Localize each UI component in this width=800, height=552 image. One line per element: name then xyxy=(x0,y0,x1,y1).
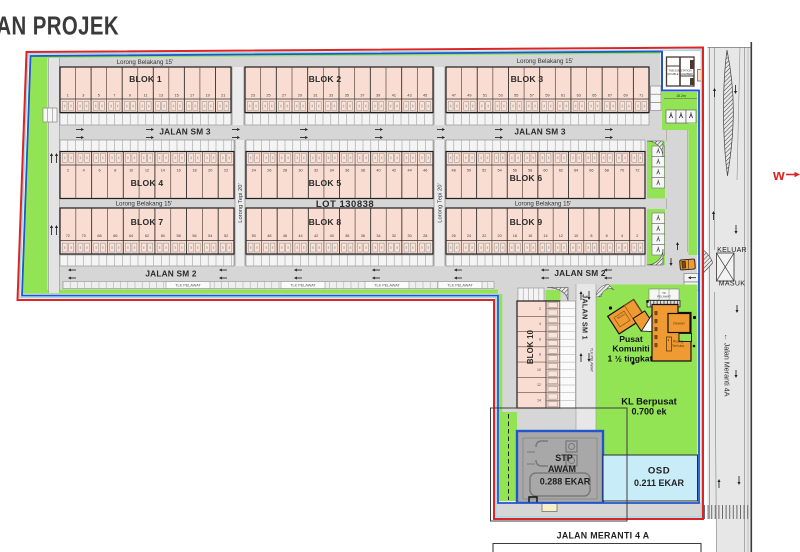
svg-text:Lorong Belakang 15’: Lorong Belakang 15’ xyxy=(116,201,173,208)
svg-text:13: 13 xyxy=(159,94,163,98)
svg-text:BLOK 3: BLOK 3 xyxy=(511,74,544,84)
svg-text:BLOK 2: BLOK 2 xyxy=(309,74,342,84)
svg-text:16: 16 xyxy=(528,234,532,238)
svg-text:JALAN SM 2: JALAN SM 2 xyxy=(554,268,606,278)
svg-text:PELAWAT: PELAWAT xyxy=(657,295,671,299)
svg-text:BLOK 4: BLOK 4 xyxy=(131,178,164,188)
svg-text:8: 8 xyxy=(590,234,592,238)
svg-text:4: 4 xyxy=(83,169,85,173)
svg-text:AWAM: AWAM xyxy=(548,464,576,474)
svg-text:18: 18 xyxy=(513,234,517,238)
svg-text:Komuniti: Komuniti xyxy=(612,344,649,354)
svg-text:2: 2 xyxy=(539,307,541,311)
svg-text:60: 60 xyxy=(543,169,547,173)
svg-text:52: 52 xyxy=(482,169,486,173)
svg-text:0.288 EKAR: 0.288 EKAR xyxy=(540,477,591,487)
svg-text:66: 66 xyxy=(589,169,593,173)
svg-text:31: 31 xyxy=(313,94,317,98)
svg-text:18: 18 xyxy=(192,169,196,173)
svg-text:← Jalan Meranti 4A: ← Jalan Meranti 4A xyxy=(723,333,732,396)
svg-text:41: 41 xyxy=(392,94,396,98)
svg-text:62: 62 xyxy=(145,234,149,238)
svg-text:6: 6 xyxy=(98,169,100,173)
svg-text:56: 56 xyxy=(192,234,196,238)
svg-text:Pusat: Pusat xyxy=(619,334,643,344)
svg-text:12: 12 xyxy=(145,169,149,173)
svg-text:(DOUBLE CHAMBER): (DOUBLE CHAMBER) xyxy=(667,72,693,76)
svg-text:65: 65 xyxy=(592,94,596,98)
svg-text:4: 4 xyxy=(621,234,623,238)
svg-text:51: 51 xyxy=(483,94,487,98)
svg-text:14: 14 xyxy=(543,234,547,238)
svg-text:43: 43 xyxy=(407,94,411,98)
svg-text:12: 12 xyxy=(537,383,541,387)
svg-text:OSD: OSD xyxy=(648,466,670,477)
svg-text:68: 68 xyxy=(97,234,101,238)
svg-text:58: 58 xyxy=(528,169,532,173)
svg-text:71: 71 xyxy=(639,94,643,98)
svg-text:20: 20 xyxy=(497,234,501,238)
svg-text:25: 25 xyxy=(266,94,270,98)
svg-text:TLK PELAWAT: TLK PELAWAT xyxy=(374,284,400,288)
svg-text:28: 28 xyxy=(283,169,287,173)
svg-text:10: 10 xyxy=(574,234,578,238)
svg-text:22: 22 xyxy=(224,169,228,173)
svg-text:38: 38 xyxy=(345,234,349,238)
svg-text:34: 34 xyxy=(376,234,380,238)
svg-text:61: 61 xyxy=(561,94,565,98)
svg-text:46: 46 xyxy=(423,169,427,173)
svg-text:4: 4 xyxy=(539,322,541,326)
svg-text:27: 27 xyxy=(282,94,286,98)
svg-text:38: 38 xyxy=(361,169,365,173)
svg-text:44: 44 xyxy=(408,169,412,173)
svg-text:TLK PELAWAT: TLK PELAWAT xyxy=(175,284,201,288)
svg-text:26: 26 xyxy=(267,169,271,173)
svg-text:10: 10 xyxy=(129,169,133,173)
svg-text:42: 42 xyxy=(392,169,396,173)
svg-text:BLOK 1: BLOK 1 xyxy=(129,74,162,84)
svg-text:10: 10 xyxy=(537,368,541,372)
svg-text:12: 12 xyxy=(559,234,563,238)
svg-text:●: ● xyxy=(668,338,670,342)
svg-text:49: 49 xyxy=(467,94,471,98)
svg-text:0.211 EKAR: 0.211 EKAR xyxy=(634,478,685,488)
svg-text:64: 64 xyxy=(129,234,133,238)
svg-text:TLK PELAWAT: TLK PELAWAT xyxy=(590,348,594,373)
svg-text:6: 6 xyxy=(606,234,608,238)
svg-text:Lorong Belakang 15’: Lorong Belakang 15’ xyxy=(117,59,174,66)
svg-text:1 ½ tingkat: 1 ½ tingkat xyxy=(608,354,653,364)
svg-text:45: 45 xyxy=(423,94,427,98)
svg-text:26: 26 xyxy=(452,234,456,238)
svg-text:STP: STP xyxy=(555,453,573,463)
svg-text:24: 24 xyxy=(252,169,256,173)
svg-text:58: 58 xyxy=(177,234,181,238)
svg-text:40: 40 xyxy=(376,169,380,173)
svg-text:44: 44 xyxy=(298,234,302,238)
svg-text:35: 35 xyxy=(345,94,349,98)
svg-text:36: 36 xyxy=(345,169,349,173)
svg-text:54: 54 xyxy=(497,169,501,173)
svg-text:63: 63 xyxy=(577,94,581,98)
svg-text:17: 17 xyxy=(190,94,194,98)
svg-text:34: 34 xyxy=(330,169,334,173)
svg-text:MASUK: MASUK xyxy=(719,281,745,288)
svg-text:w: w xyxy=(772,167,785,184)
svg-text:39: 39 xyxy=(376,94,380,98)
svg-text:52: 52 xyxy=(224,234,228,238)
svg-text:62: 62 xyxy=(559,169,563,173)
svg-text:Lorong Tepi 20’: Lorong Tepi 20’ xyxy=(238,183,244,223)
svg-text:59: 59 xyxy=(545,94,549,98)
svg-text:8: 8 xyxy=(114,169,116,173)
svg-text:16: 16 xyxy=(177,169,181,173)
svg-text:72: 72 xyxy=(635,169,639,173)
svg-text:47: 47 xyxy=(452,94,456,98)
svg-text:15: 15 xyxy=(174,94,178,98)
svg-text:5: 5 xyxy=(98,94,100,98)
svg-text:22: 22 xyxy=(482,234,486,238)
svg-text:53: 53 xyxy=(499,94,503,98)
svg-text:23: 23 xyxy=(251,94,255,98)
svg-text:JALAN SM 3: JALAN SM 3 xyxy=(159,127,211,137)
svg-text:72: 72 xyxy=(66,234,70,238)
svg-text:69: 69 xyxy=(623,94,627,98)
svg-text:15.2m: 15.2m xyxy=(676,94,686,98)
svg-text:JALAN SM 1: JALAN SM 1 xyxy=(581,294,590,340)
svg-text:9: 9 xyxy=(129,94,131,98)
svg-text:32: 32 xyxy=(314,169,318,173)
svg-text:70: 70 xyxy=(620,169,624,173)
svg-text:BLOK 5: BLOK 5 xyxy=(309,178,342,188)
svg-text:42: 42 xyxy=(314,234,318,238)
svg-text:66: 66 xyxy=(113,234,117,238)
svg-text:33: 33 xyxy=(329,94,333,98)
svg-text:68: 68 xyxy=(605,169,609,173)
svg-text:JALAN SM 2: JALAN SM 2 xyxy=(145,269,197,279)
svg-text:64: 64 xyxy=(574,169,578,173)
svg-text:30: 30 xyxy=(298,169,302,173)
svg-text:30: 30 xyxy=(408,234,412,238)
svg-text:29: 29 xyxy=(298,94,302,98)
svg-text:56: 56 xyxy=(513,169,517,173)
svg-text:2: 2 xyxy=(636,234,638,238)
svg-text:KL Berpusat: KL Berpusat xyxy=(621,396,677,407)
svg-text:Ruang: Ruang xyxy=(673,340,683,344)
svg-text:AN PROJEK: AN PROJEK xyxy=(0,11,119,40)
svg-text:24: 24 xyxy=(467,234,471,238)
svg-text:Dewan: Dewan xyxy=(673,322,684,326)
svg-text:70: 70 xyxy=(82,234,86,238)
svg-text:37: 37 xyxy=(360,94,364,98)
svg-text:6: 6 xyxy=(539,337,541,341)
svg-text:55: 55 xyxy=(514,94,518,98)
svg-text:14: 14 xyxy=(537,399,541,403)
svg-text:BLOK 6: BLOK 6 xyxy=(510,173,543,183)
svg-text:21: 21 xyxy=(221,94,225,98)
svg-text:48: 48 xyxy=(267,234,271,238)
svg-text:3: 3 xyxy=(82,94,84,98)
svg-text:8: 8 xyxy=(539,353,541,357)
svg-text:60: 60 xyxy=(161,234,165,238)
svg-text:54: 54 xyxy=(208,234,212,238)
svg-text:40: 40 xyxy=(330,234,334,238)
svg-text:2: 2 xyxy=(67,169,69,173)
svg-text:JALAN SM 3: JALAN SM 3 xyxy=(514,127,566,137)
svg-text:20: 20 xyxy=(208,169,212,173)
svg-text:BLOK 9: BLOK 9 xyxy=(510,217,543,227)
svg-text:Lorong Tepi 20’: Lorong Tepi 20’ xyxy=(438,183,444,223)
svg-text:BLOK 8: BLOK 8 xyxy=(309,217,342,227)
svg-text:0.700 ek: 0.700 ek xyxy=(631,407,667,417)
svg-text:46: 46 xyxy=(283,234,287,238)
svg-text:Lorong Belakang 15’: Lorong Belakang 15’ xyxy=(515,201,572,208)
svg-text:50: 50 xyxy=(467,169,471,173)
svg-text:57: 57 xyxy=(530,94,534,98)
svg-text:28: 28 xyxy=(423,234,427,238)
svg-text:TLK PELAWAT: TLK PELAWAT xyxy=(447,284,473,288)
svg-text:BLOK 7: BLOK 7 xyxy=(131,217,164,227)
svg-text:TLK PELAWAT: TLK PELAWAT xyxy=(290,284,316,288)
svg-text:1: 1 xyxy=(67,94,69,98)
svg-text:7: 7 xyxy=(113,94,115,98)
svg-text:14: 14 xyxy=(161,169,165,173)
svg-text:Lorong Belakang 15’: Lorong Belakang 15’ xyxy=(517,58,574,65)
svg-text:11: 11 xyxy=(144,94,148,98)
svg-text:48: 48 xyxy=(452,169,456,173)
svg-text:50: 50 xyxy=(252,234,256,238)
svg-text:36: 36 xyxy=(361,234,365,238)
svg-text:BLOK 10: BLOK 10 xyxy=(526,329,535,364)
svg-text:JALAN MERANTI 4 A: JALAN MERANTI 4 A xyxy=(557,531,650,541)
svg-text:Terbuka: Terbuka xyxy=(672,344,684,348)
svg-text:32: 32 xyxy=(392,234,396,238)
svg-text:67: 67 xyxy=(608,94,612,98)
svg-text:19: 19 xyxy=(206,94,210,98)
